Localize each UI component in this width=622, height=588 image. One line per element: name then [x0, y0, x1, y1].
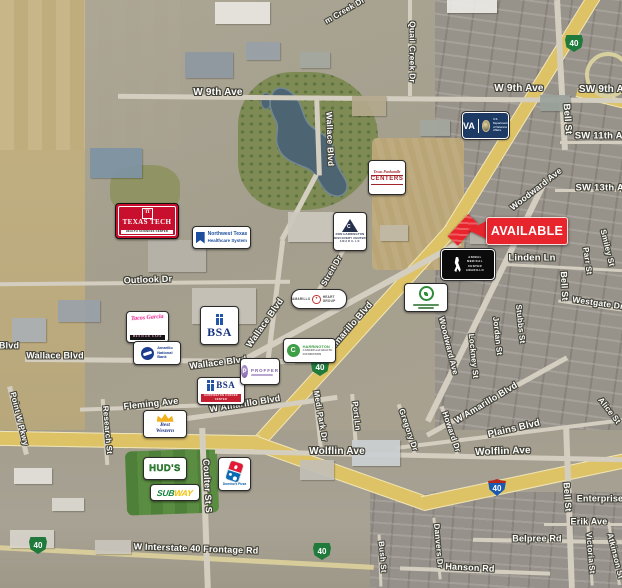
street-label-bell-st: Bell St [559, 271, 570, 301]
divider [478, 119, 479, 133]
heart-icon: ♥ [312, 295, 320, 304]
street-label-wolflin-ave: Wolflin Ave [309, 447, 365, 457]
street-label-enterprise: Enterprise [577, 495, 622, 504]
texas-panhandle-centers-logo: Texas Panhandle CENTERS [368, 160, 406, 195]
green-circle-icon: C [287, 344, 300, 357]
street-label-quail-creek-dr: Quail Creek Dr [408, 21, 417, 83]
street-label-w-9th-ave: W 9th Ave [494, 84, 543, 94]
illegible-text-line [251, 374, 273, 376]
building [215, 2, 270, 24]
bsa-cross-icon [207, 380, 215, 391]
leaf-ring-icon [419, 286, 434, 301]
dominos-logo: Domino's Pizza [218, 457, 251, 491]
street-label-outlook-dr: Outlook Dr [124, 275, 173, 286]
street-label-wallace-blvd: Wallace Blvd [26, 352, 84, 361]
street-label-bell-st: Bell St [561, 482, 572, 512]
building [95, 540, 131, 554]
street-label-wallace-blvd: Wallace Blvd [325, 112, 335, 167]
harrington-foundation-logo: C HARRINGTON CANCER and HEALTH FOUNDATIO… [283, 338, 336, 363]
building [52, 498, 84, 511]
building [380, 225, 408, 241]
building [90, 148, 142, 178]
discovery-center-logo: C DON HARRINGTON DISCOVERY CENTER AMARIL… [333, 212, 367, 251]
available-arrow-icon [468, 221, 487, 239]
street-label-sw-9th-ave: SW 9th Ave [579, 85, 622, 95]
bsa-logo: BSA [200, 306, 239, 345]
illegible-text-line [413, 304, 439, 306]
heart-group-logo: AMARILLO ♥ HEART GROUP [291, 289, 347, 309]
green-emblem-logo [404, 283, 448, 312]
street-label-wolflin-ave: Wolflin Ave [475, 446, 531, 458]
black-bird-medical-logo: ANIMAL MEDICAL CENTER AMARILLO [441, 249, 495, 280]
texas-tech-hsc-logo: TT TEXAS TECH HEALTH SCIENCES CENTER [115, 203, 179, 239]
street-label-bell-st: Bell St [561, 103, 573, 135]
bank-circle-icon [141, 347, 154, 360]
amarillo-national-bank-logo: Amarillo National Bank [133, 341, 181, 365]
northwest-texas-healthcare-logo: Northwest Texas Healthcare System [192, 226, 251, 249]
bird-icon [452, 257, 463, 273]
building [300, 460, 334, 480]
street-label-coulter-st-s: Coulter St S [201, 459, 213, 513]
street-label-linden-ln: Linden Ln [508, 253, 555, 263]
huds-logo: HUD'S [143, 457, 187, 480]
va-logo: VA U.S. Department of Veterans Affairs [462, 112, 509, 139]
subway-logo: SUBWAY [150, 484, 200, 501]
street-label-bush-st: Bush St [377, 541, 388, 573]
building [185, 52, 233, 78]
building [246, 42, 280, 60]
building [288, 212, 334, 242]
domino-tile-icon [225, 460, 243, 482]
building [300, 52, 330, 68]
best-western-logo: Best Western [143, 410, 187, 438]
va-seal-icon [482, 120, 491, 132]
building [58, 300, 100, 322]
bsa-harrington-cancer-logo: BSA HARRINGTON CANCER CENTER [197, 377, 245, 405]
tacos-garcia-logo: Tacos Garcia MEXICAN CAFE [126, 311, 169, 343]
building [420, 120, 450, 136]
street-label-erik-ave: Erik Ave [571, 518, 608, 527]
crown-icon [157, 414, 174, 422]
bsa-cross-icon [216, 314, 224, 325]
building [352, 96, 386, 116]
street-label-belpree-rd: Belpree Rd [512, 535, 562, 544]
street-label-port-ln: Port Ln [350, 401, 361, 431]
street-label-sw-11th-ave: SW 11th Ave [575, 131, 622, 141]
building [12, 318, 46, 342]
available-callout[interactable]: AVAILABLE [486, 217, 568, 245]
street-label-blvd: Blvd [0, 342, 19, 351]
proffer-logo: P PROFFER [240, 358, 280, 385]
flag-icon [196, 232, 205, 244]
building [447, 0, 497, 13]
triangle-monument-icon: C [342, 219, 358, 232]
proffer-circle-icon: P [241, 365, 248, 378]
illegible-text-line [418, 307, 434, 309]
street-label-sw-13th-ave: SW 13th Ave [575, 183, 622, 193]
aerial-map-canvas[interactable]: m Creek DrQuail Creek DrW 9th AveW 9th A… [0, 0, 622, 588]
building [14, 468, 52, 484]
street-label-w-9th-ave: W 9th Ave [193, 88, 242, 98]
